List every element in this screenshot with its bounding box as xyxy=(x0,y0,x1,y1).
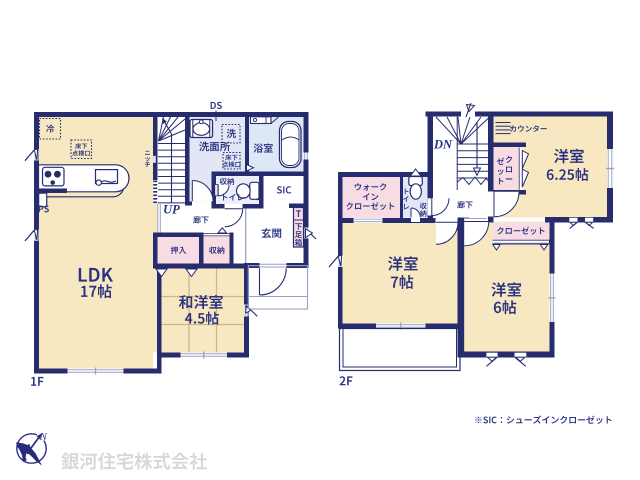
svg-text:DN: DN xyxy=(433,138,453,152)
svg-text:UP: UP xyxy=(163,203,180,217)
svg-text:N: N xyxy=(39,432,48,443)
